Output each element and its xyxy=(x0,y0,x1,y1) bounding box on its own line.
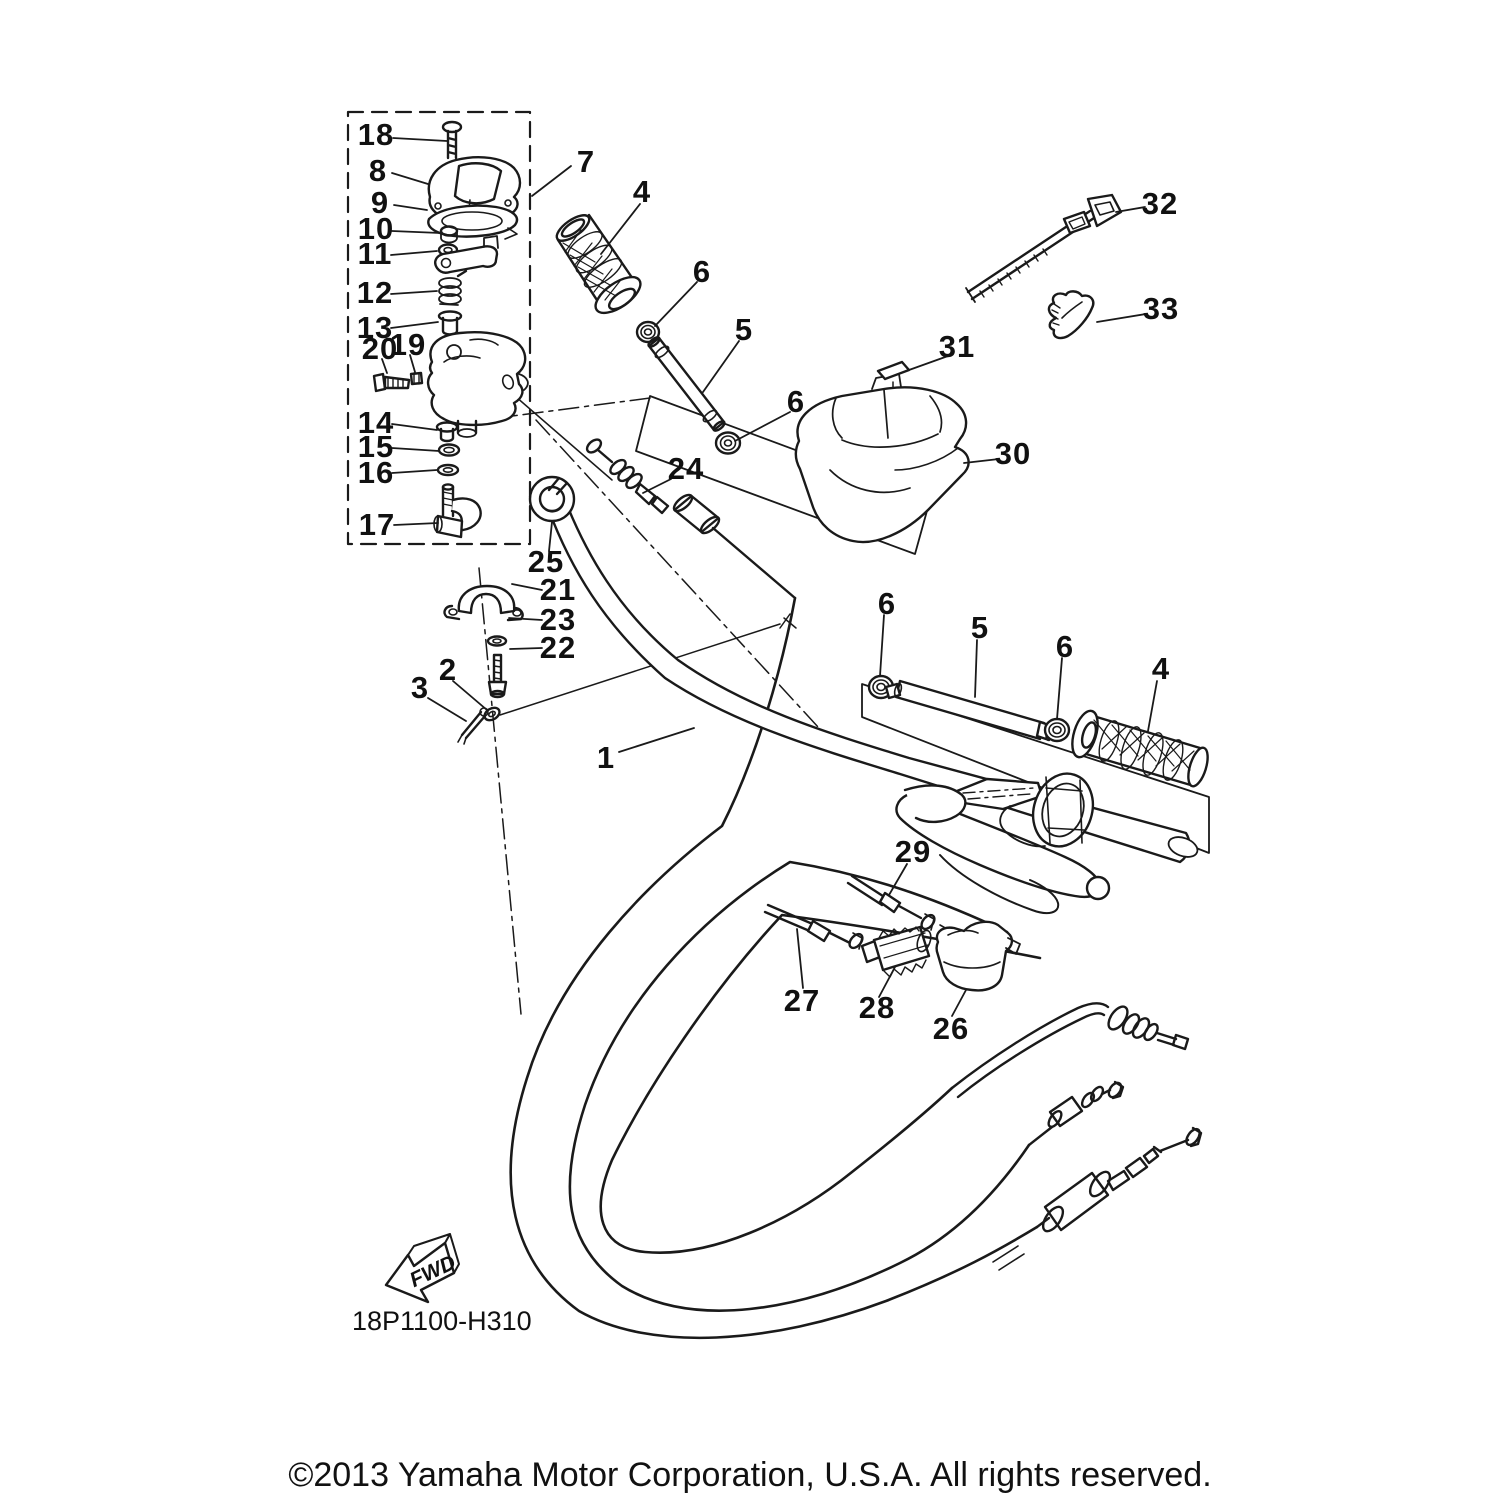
callout-19: 19 xyxy=(390,327,426,363)
leader-line-5 xyxy=(975,640,977,697)
callout-26: 26 xyxy=(933,1011,969,1047)
leader-line-18 xyxy=(393,138,447,141)
leader-line-14 xyxy=(392,424,437,430)
leader-line-11 xyxy=(391,251,437,255)
callout-12: 12 xyxy=(357,275,393,311)
leader-line-15 xyxy=(392,448,439,451)
exploded-parts-drawing xyxy=(0,0,1500,1500)
cable-end-middle xyxy=(1029,1081,1124,1145)
screw-18 xyxy=(443,122,461,158)
cable-cover-26 xyxy=(937,922,1021,991)
washer-cap-6b xyxy=(716,433,740,454)
leader-line-22 xyxy=(510,648,542,649)
callout-2: 2 xyxy=(439,652,457,688)
leader-line-5 xyxy=(703,341,739,392)
leader-line-4 xyxy=(1148,681,1157,731)
callout-33: 33 xyxy=(1143,291,1179,327)
leader-line-4 xyxy=(601,204,640,254)
cable-adjuster-28 xyxy=(862,927,933,977)
callout-6: 6 xyxy=(693,254,711,290)
leader-line-17 xyxy=(394,523,438,525)
leader-line-33 xyxy=(1097,314,1146,322)
leader-line-6 xyxy=(1057,658,1062,719)
callout-28: 28 xyxy=(859,990,895,1026)
callout-17: 17 xyxy=(359,507,395,543)
callout-31: 31 xyxy=(939,329,975,365)
parts-diagram-page: 1889101112132019141516177465624252123222… xyxy=(0,0,1500,1500)
callout-6: 6 xyxy=(787,384,805,420)
handlebar-collar xyxy=(530,477,574,521)
diagram-code: 18P1100-H310 xyxy=(352,1306,532,1337)
spring-12 xyxy=(439,271,466,305)
leader-line-7 xyxy=(532,166,571,196)
callout-24: 24 xyxy=(668,451,704,487)
callout-1: 1 xyxy=(597,740,615,776)
throttle-tube xyxy=(647,336,726,433)
leader-line-3 xyxy=(428,698,466,721)
bushing-14 xyxy=(437,423,457,442)
nut-19 xyxy=(411,373,422,384)
copyright-text: ©2013 Yamaha Motor Corporation, U.S.A. A… xyxy=(0,1456,1500,1495)
leader-line-12 xyxy=(391,291,437,294)
leader-line-6 xyxy=(880,615,884,676)
callout-5: 5 xyxy=(735,312,753,348)
callout-4: 4 xyxy=(1152,651,1170,687)
leader-line-16 xyxy=(392,470,437,473)
callout-4: 4 xyxy=(633,174,651,210)
throttle-arm-17 xyxy=(434,484,481,537)
cable-27 xyxy=(765,905,865,950)
handlebar-cover-30 xyxy=(796,374,969,542)
leader-line-6 xyxy=(655,282,697,326)
grip-right xyxy=(1067,708,1211,789)
bushing-13 xyxy=(439,312,461,335)
throttle-tube-right xyxy=(886,681,1055,741)
screw-20 xyxy=(374,374,409,391)
callout-27: 27 xyxy=(784,983,820,1019)
grip-left xyxy=(553,211,646,320)
housing-lower xyxy=(428,332,528,437)
callout-11: 11 xyxy=(358,236,393,272)
cable-29 xyxy=(848,876,956,934)
callout-29: 29 xyxy=(895,834,931,870)
washer-23 xyxy=(488,637,506,646)
leader-line-8 xyxy=(392,173,428,184)
bolt-22 xyxy=(489,655,506,697)
callout-6: 6 xyxy=(878,586,896,622)
washer-15 xyxy=(439,445,459,456)
washer-16 xyxy=(438,465,458,475)
leader-line-6 xyxy=(735,412,790,441)
leader-line-10 xyxy=(392,231,440,233)
callout-16: 16 xyxy=(358,455,394,491)
callout-8: 8 xyxy=(369,153,387,189)
cable-tie-32 xyxy=(966,195,1121,302)
cable-end-large xyxy=(993,1127,1202,1270)
leader-line-2 xyxy=(453,681,487,710)
callout-5: 5 xyxy=(971,610,989,646)
pin-3 xyxy=(458,708,488,744)
callout-7: 7 xyxy=(577,144,595,180)
callout-3: 3 xyxy=(411,670,429,706)
clamp-33 xyxy=(1049,291,1093,338)
callout-18: 18 xyxy=(358,117,394,153)
leader-line-27 xyxy=(797,929,803,988)
label-31 xyxy=(878,362,909,379)
leader-line-9 xyxy=(394,205,427,210)
leader-line-21 xyxy=(512,584,542,590)
washer-cap-6d xyxy=(1045,719,1069,741)
cable-end-spring xyxy=(952,1003,1188,1097)
callout-22: 22 xyxy=(540,630,576,666)
callout-30: 30 xyxy=(995,436,1031,472)
callout-6: 6 xyxy=(1056,629,1074,665)
callout-32: 32 xyxy=(1142,186,1178,222)
leader-line-1 xyxy=(619,728,694,752)
